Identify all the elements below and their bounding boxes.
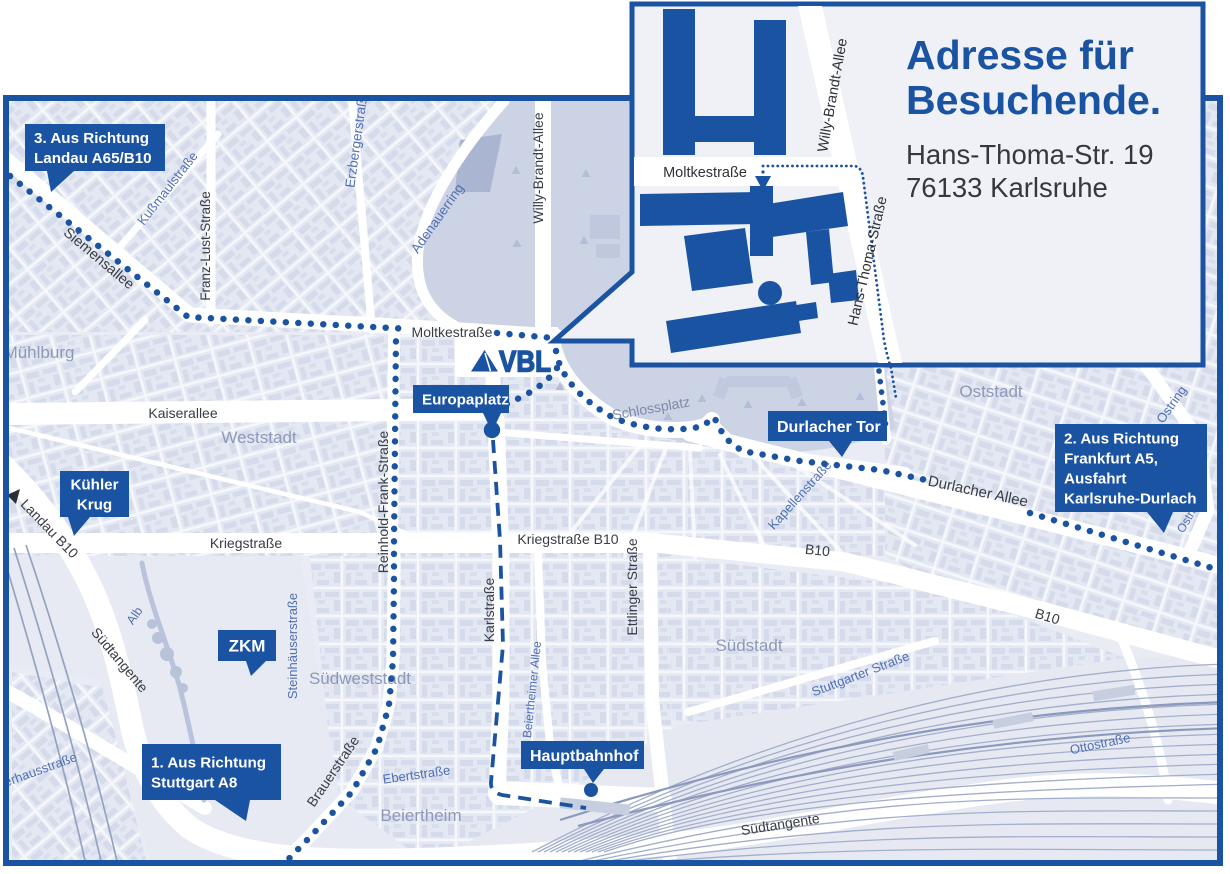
svg-text:Mühlburg: Mühlburg xyxy=(4,343,75,362)
svg-text:Südweststadt: Südweststadt xyxy=(309,669,411,688)
svg-text:Willy-Brandt-Allee: Willy-Brandt-Allee xyxy=(530,112,546,223)
svg-text:Reinhold-Frank-Straße: Reinhold-Frank-Straße xyxy=(375,431,391,574)
svg-text:Beiertheim: Beiertheim xyxy=(380,806,461,825)
svg-text:Kriegstraße: Kriegstraße xyxy=(210,535,283,551)
svg-text:Moltkestraße: Moltkestraße xyxy=(663,165,747,181)
svg-text:Adresse für: Adresse für xyxy=(906,32,1134,78)
svg-text:VBL: VBL xyxy=(499,346,551,379)
svg-text:Kaiserallee: Kaiserallee xyxy=(148,405,217,421)
svg-text:Oststadt: Oststadt xyxy=(959,382,1023,401)
svg-text:ZKM: ZKM xyxy=(229,637,266,656)
svg-text:1. Aus Richtung: 1. Aus Richtung xyxy=(151,754,266,771)
svg-text:3. Aus Richtung: 3. Aus Richtung xyxy=(34,130,149,147)
svg-text:2. Aus Richtung: 2. Aus Richtung xyxy=(1064,430,1179,447)
svg-text:Hans-Thoma-Str. 19: Hans-Thoma-Str. 19 xyxy=(906,139,1154,170)
svg-text:Moltkestraße: Moltkestraße xyxy=(412,324,493,340)
svg-text:Weststadt: Weststadt xyxy=(221,428,297,447)
svg-text:Durlacher Tor: Durlacher Tor xyxy=(777,419,881,436)
svg-text:B10: B10 xyxy=(804,541,831,560)
svg-text:Europaplatz: Europaplatz xyxy=(422,392,509,409)
svg-text:Karlstraße: Karlstraße xyxy=(481,578,497,643)
svg-text:Steinhäuserstraße: Steinhäuserstraße xyxy=(285,593,300,699)
svg-text:Besuchende.: Besuchende. xyxy=(906,77,1161,123)
svg-text:Hauptbahnhof: Hauptbahnhof xyxy=(530,748,639,765)
svg-text:Krug: Krug xyxy=(77,497,112,514)
svg-text:Ausfahrt: Ausfahrt xyxy=(1064,471,1126,488)
svg-text:Südstadt: Südstadt xyxy=(715,636,782,655)
svg-text:76133 Karlsruhe: 76133 Karlsruhe xyxy=(906,172,1108,203)
svg-text:Karlsruhe-Durlach: Karlsruhe-Durlach xyxy=(1064,491,1197,508)
svg-text:Frankfurt A5,: Frankfurt A5, xyxy=(1064,450,1158,467)
svg-text:Kühler: Kühler xyxy=(70,476,118,493)
svg-text:Kriegstraße B10: Kriegstraße B10 xyxy=(517,531,618,547)
svg-text:Ettlinger Straße: Ettlinger Straße xyxy=(624,538,640,635)
svg-text:Franz-Lust-Straße: Franz-Lust-Straße xyxy=(198,191,213,301)
svg-text:Stuttgart A8: Stuttgart A8 xyxy=(151,775,237,792)
svg-text:Landau A65/B10: Landau A65/B10 xyxy=(34,150,152,167)
